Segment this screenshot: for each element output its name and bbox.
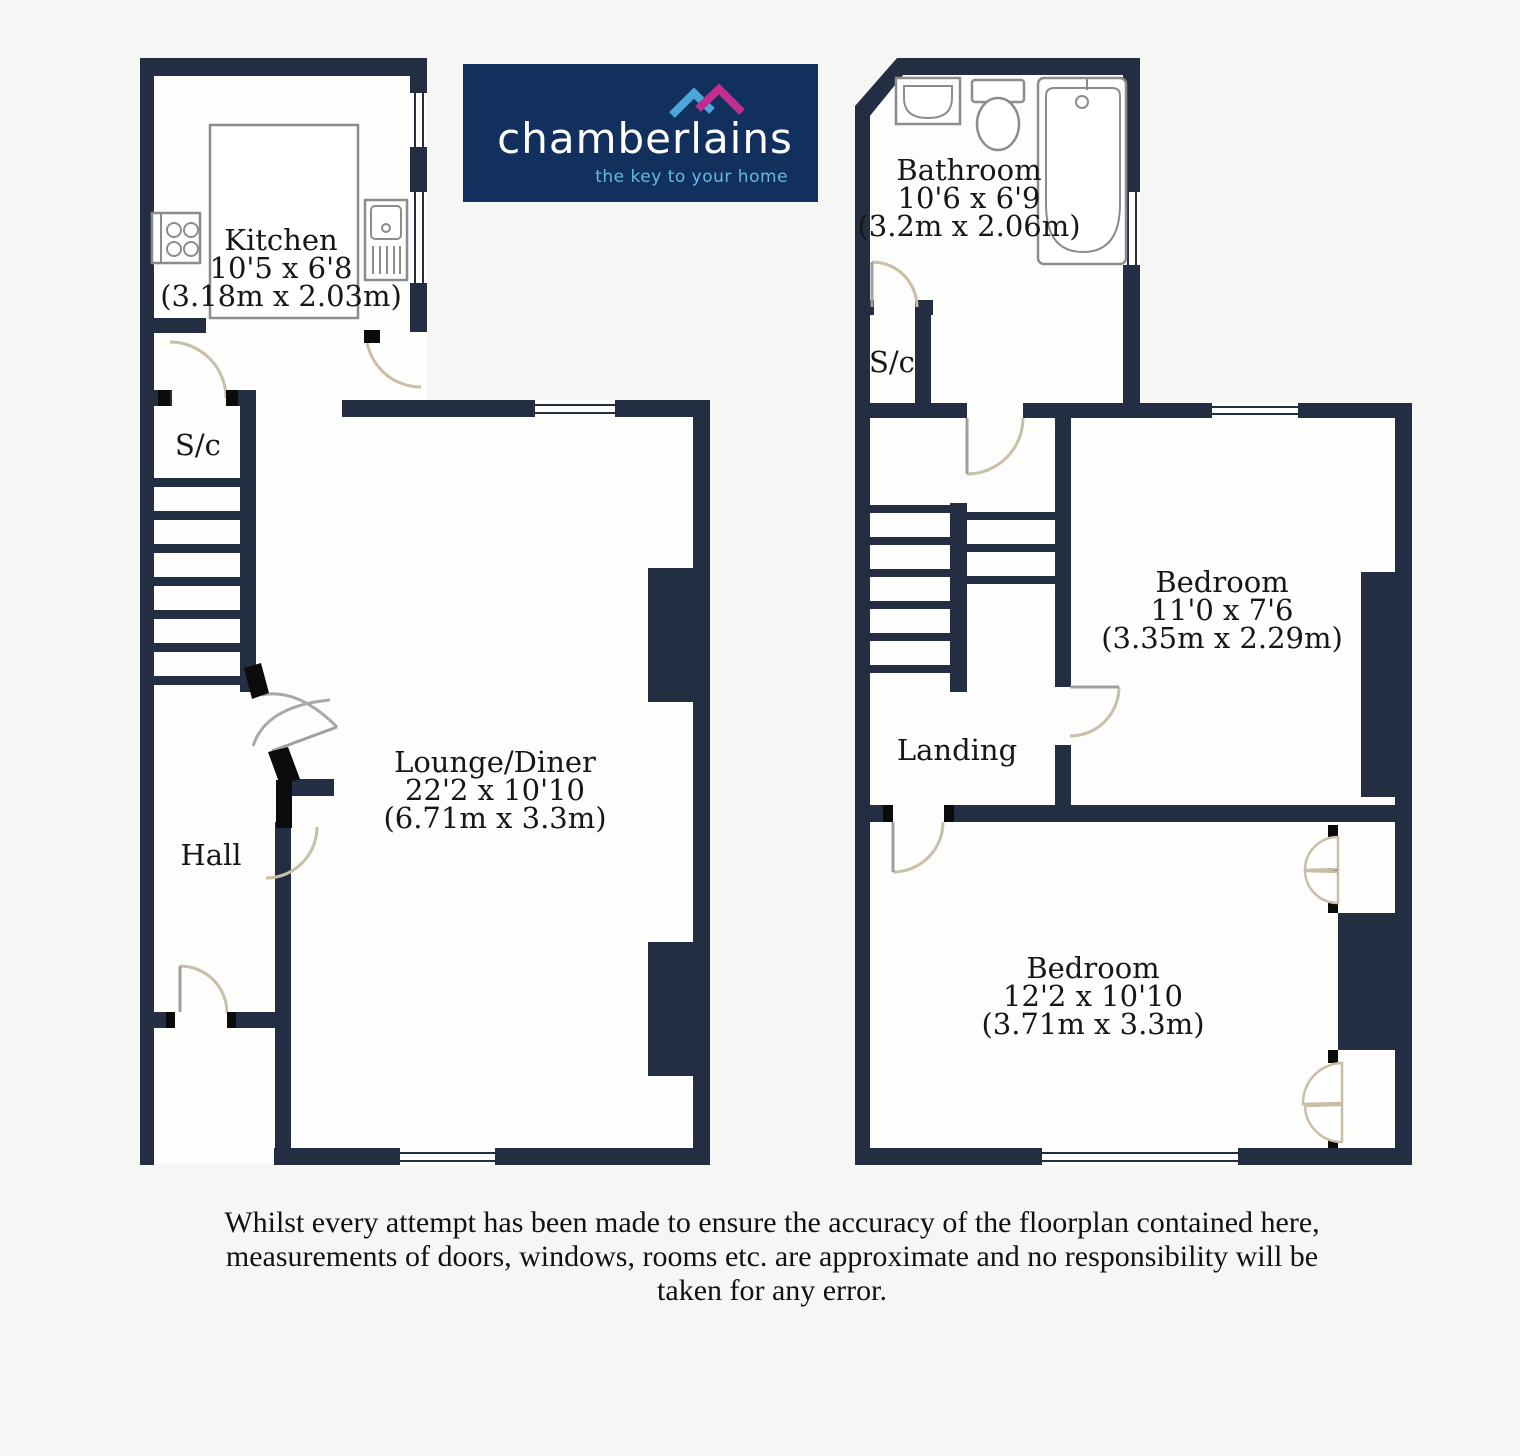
chimney-breast <box>648 568 693 702</box>
disclaimer-line-3: taken for any error. <box>657 1274 887 1307</box>
bathroom-dims-metric: (3.2m x 2.06m) <box>857 209 1080 243</box>
bedroom2-window <box>1042 1148 1238 1165</box>
wall-segment <box>1395 403 1412 1165</box>
brand-logo: chamberlains the key to your home <box>463 64 818 202</box>
wall-segment <box>495 1148 710 1165</box>
lounge-window <box>535 400 615 417</box>
wall-segment <box>410 76 427 93</box>
kitchen-dims-metric: (3.18m x 2.03m) <box>160 279 402 313</box>
cupboard-jamb <box>1328 1050 1338 1063</box>
lounge-window <box>400 1148 495 1165</box>
wall-segment <box>410 147 427 192</box>
chimney-breast <box>1338 913 1395 1050</box>
wall-segment <box>855 115 870 1165</box>
wall-segment <box>1238 1148 1410 1165</box>
hob-icon <box>152 213 200 263</box>
brand-wordmark: chamberlains <box>497 114 793 163</box>
wall-segment <box>693 400 710 1165</box>
floorplan-page: Kitchen 10'5 x 6'8 (3.18m x 2.03m) S/c L… <box>0 0 1520 1456</box>
kitchen-window <box>410 93 427 147</box>
basin-icon <box>896 78 960 124</box>
chimney-breast <box>1361 572 1395 797</box>
wall-segment <box>342 400 535 417</box>
wall-segment <box>140 58 427 76</box>
wall-segment <box>915 313 931 405</box>
disclaimer-line-1: Whilst every attempt has been made to en… <box>224 1206 1319 1239</box>
disclaimer-line-2: measurements of doors, windows, rooms et… <box>226 1240 1318 1273</box>
bedroom2-dims-metric: (3.71m x 3.3m) <box>981 1007 1204 1041</box>
brand-tagline: the key to your home <box>595 167 788 187</box>
wall-segment <box>855 1148 1042 1165</box>
bedroom1-window <box>1212 403 1298 418</box>
wall-segment <box>274 1148 400 1165</box>
wall-segment <box>1055 418 1071 687</box>
wall-segment <box>289 779 334 796</box>
sc-first-label: S/c <box>869 345 915 379</box>
toilet-icon <box>972 80 1024 150</box>
hall-label: Hall <box>180 838 241 872</box>
wall-segment <box>953 805 1410 822</box>
wall-segment <box>855 403 967 418</box>
wall-segment <box>1023 403 1123 418</box>
wall-segment <box>410 283 427 332</box>
chimney-breast <box>648 942 693 1076</box>
wall-segment <box>1140 403 1212 418</box>
wall-segment <box>1298 403 1410 418</box>
wall-segment <box>950 503 967 692</box>
lounge-dims-metric: (6.71m x 3.3m) <box>383 801 606 835</box>
landing-label: Landing <box>897 733 1017 767</box>
kitchen-window <box>410 192 427 283</box>
wall-segment <box>1123 265 1140 418</box>
sc-ground-label: S/c <box>175 428 221 462</box>
floorplan-drawing: Kitchen 10'5 x 6'8 (3.18m x 2.03m) S/c L… <box>0 0 1520 1456</box>
lounge-label: Lounge/Diner 22'2 x 10'10 (6.71m x 3.3m) <box>383 745 606 835</box>
ground-floor-plan: Kitchen 10'5 x 6'8 (3.18m x 2.03m) S/c L… <box>140 58 710 1165</box>
bedroom1-dims-metric: (3.35m x 2.29m) <box>1101 621 1343 655</box>
first-floor-plan: Bathroom 10'6 x 6'9 (3.2m x 2.06m) S/c B… <box>855 58 1412 1165</box>
wall-segment <box>240 390 256 692</box>
sink-icon <box>365 200 407 280</box>
disclaimer: Whilst every attempt has been made to en… <box>224 1206 1319 1307</box>
wall-segment <box>140 318 206 333</box>
wall-segment <box>897 58 1140 75</box>
